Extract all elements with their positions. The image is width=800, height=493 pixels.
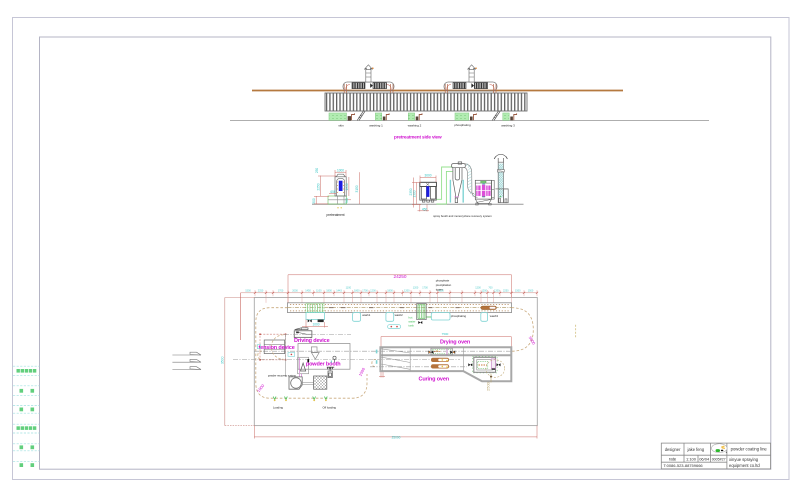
svg-text:powder booth: powder booth [306,362,341,368]
svg-text:1200: 1200 [482,289,488,292]
svg-text:T:0086-523-88759666: T:0086-523-88759666 [664,463,704,468]
svg-text:phosphate: phosphate [436,279,450,283]
svg-text:wash1: wash1 [362,313,371,317]
svg-text:2250: 2250 [503,289,509,292]
svg-text:1200: 1200 [475,286,481,289]
svg-text:pretreatment: pretreatment [327,213,345,217]
svg-text:3000: 3000 [424,174,431,178]
svg-text:2500: 2500 [485,381,490,391]
svg-text:24250: 24250 [393,274,406,279]
svg-text:Off loading: Off loading [323,406,337,410]
svg-text:1700: 1700 [422,286,428,289]
svg-text:rate: rate [669,456,677,461]
svg-text:1000: 1000 [312,323,319,327]
svg-text:700: 700 [345,198,349,204]
svg-text:1100: 1100 [346,286,352,289]
svg-text:phosphating: phosphating [454,123,471,127]
svg-text:1100: 1100 [316,289,322,292]
svg-text:1443: 1443 [336,289,342,292]
svg-text:jake feng: jake feng [687,447,705,452]
svg-text:1500: 1500 [515,289,521,292]
svg-text:700: 700 [488,286,493,289]
svg-text:25000: 25000 [392,435,401,439]
svg-text:tank: tank [408,324,414,328]
svg-text:1700: 1700 [362,289,368,292]
svg-text:2250: 2250 [258,289,264,292]
svg-text:1450: 1450 [305,289,311,292]
svg-text:3150: 3150 [355,185,359,192]
svg-text:1950: 1950 [345,183,349,190]
svg-text:skin: skin [338,123,344,127]
svg-text:spray booth and monocyclone re: spray booth and monocyclone recovery sys… [433,214,492,218]
svg-text:Drying oven: Drying oven [440,339,471,345]
svg-text:1800: 1800 [354,289,360,292]
svg-text:tower: tower [436,288,443,292]
svg-text:Loading: Loading [273,406,283,410]
svg-text:1000: 1000 [337,168,344,172]
svg-text:0005#27: 0005#27 [712,457,726,461]
svg-text:1500: 1500 [245,289,251,292]
svg-text:250: 250 [315,168,319,174]
svg-text:washing 1: washing 1 [369,123,383,127]
svg-text:500: 500 [312,198,316,204]
svg-text:2000: 2000 [292,289,298,292]
svg-text:1500: 1500 [528,289,534,292]
svg-text:Curing oven: Curing oven [419,376,450,382]
svg-text:7500: 7500 [442,332,449,336]
svg-text:wash2: wash2 [395,313,404,317]
svg-text:1:100: 1:100 [686,456,697,461]
svg-text:3500: 3500 [220,356,224,364]
svg-text:washing 3: washing 3 [501,123,515,127]
svg-text:wash3: wash3 [490,314,499,318]
svg-text:powder coating line: powder coating line [731,447,768,452]
svg-text:phosphating: phosphating [451,314,467,318]
svg-text:1800: 1800 [326,289,332,292]
svg-text:tension device: tension device [259,345,295,351]
svg-text:1700: 1700 [278,289,284,292]
svg-text:2250: 2250 [317,183,321,190]
svg-text:1200: 1200 [413,286,419,289]
svg-text:1200: 1200 [494,289,500,292]
svg-text:1800: 1800 [387,289,393,292]
svg-text:1300: 1300 [413,190,417,197]
svg-text:1200: 1200 [370,289,376,292]
svg-text:06/04: 06/04 [699,456,710,461]
svg-text:designer: designer [665,447,681,452]
svg-text:450: 450 [422,208,428,212]
svg-text:precipitation: precipitation [436,283,452,287]
svg-text:washing 2: washing 2 [408,123,422,127]
svg-text:pretreatment side view: pretreatment side view [394,135,442,140]
svg-text:650: 650 [330,190,336,194]
svg-text:equipment co.ltd: equipment co.ltd [729,463,760,468]
svg-text:Driving device: Driving device [294,338,330,344]
svg-text:xinyue spraying: xinyue spraying [729,457,759,462]
svg-text:1200: 1200 [404,289,410,292]
